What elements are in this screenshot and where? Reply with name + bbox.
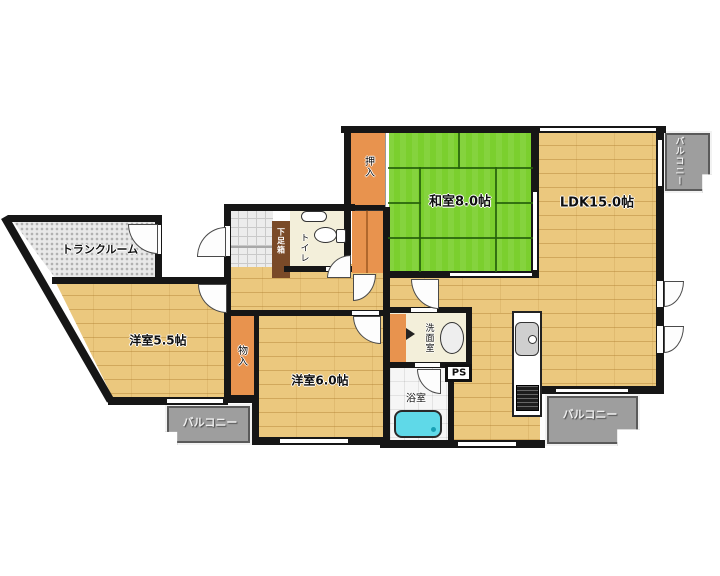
window-bottom-mid [458, 442, 516, 446]
balcony-top-right-label: バルコニー [673, 136, 686, 186]
wall-entry-top [224, 204, 355, 211]
ldk-side-door-1 [664, 281, 684, 307]
oshiire-label: 押入 [361, 156, 376, 178]
door-gap-washroom [411, 308, 437, 312]
ldk-side-door-2 [664, 326, 684, 353]
entry-step-line [229, 246, 273, 248]
washroom-label: 洗面室 [423, 323, 436, 353]
wall-washroom-right [466, 307, 472, 369]
door-gap-ldk-2 [657, 326, 663, 353]
door-gap-bath [415, 363, 440, 367]
balcony-bottom-right-label: バルコニー [563, 406, 618, 422]
ldk-label: LDK15.0帖 [560, 192, 634, 211]
window-ldk-balcony [556, 389, 628, 392]
mononyu-label: 物入 [234, 345, 249, 367]
window-balcony-tr [658, 140, 662, 186]
trunk-room-label: トランクルーム [62, 241, 138, 257]
washroom-closet-arrow [406, 328, 415, 340]
wall-wet-left [383, 271, 390, 448]
bathtub [394, 410, 442, 438]
balcony-top-right [663, 131, 712, 193]
tatami-line [388, 167, 533, 169]
room55-label: 洋室5.5帖 [129, 332, 186, 349]
hall-closet-divider [366, 210, 368, 273]
tatami-line [495, 239, 497, 272]
balcony-bottom-left-label: バルコニー [183, 414, 238, 430]
fusuma-washitsu-bottom [450, 273, 532, 276]
hall-closet [352, 210, 384, 273]
tatami-line [495, 202, 533, 204]
entry-floor [229, 209, 273, 267]
getabako-label: 下足箱 [276, 228, 287, 255]
tatami-line [388, 237, 533, 239]
door-gap-ldk-1 [657, 281, 663, 307]
wall-oshiire-bottom [351, 205, 386, 210]
ldk-floor [538, 131, 661, 389]
kitchen-stove [516, 385, 539, 411]
toilet-bowl [314, 227, 337, 243]
tatami-line [388, 202, 421, 204]
bathtub-drain [431, 427, 436, 432]
toilet-hand-basin [301, 211, 327, 222]
toilet-label: トイレ [298, 233, 311, 263]
floor-plan: 和室8.0帖 LDK15.0帖 洋室5.5帖 洋室6.0帖 トランクルーム 押入… [0, 0, 720, 576]
toilet-tank [336, 229, 346, 243]
entrance-door [197, 227, 226, 257]
wall-trunk-55-divider [52, 277, 227, 284]
washitsu-label: 和室8.0帖 [429, 191, 491, 210]
window-room60 [280, 439, 348, 443]
washroom-closet [390, 314, 406, 363]
door-gap-room60 [352, 311, 379, 315]
bath-label: 浴室 [406, 390, 426, 405]
window-ldk-top [540, 128, 656, 131]
fusuma-oshiire [385, 133, 389, 207]
ps-label: PS [452, 368, 467, 379]
wall-washitsu-left-lower [383, 207, 390, 273]
fusuma-washitsu-ldk [533, 192, 537, 270]
room60-label: 洋室6.0帖 [291, 372, 348, 389]
wall-trunk-top [8, 215, 160, 222]
kitchen-faucet [528, 335, 537, 344]
tatami-line [458, 133, 460, 169]
window-room55 [167, 399, 223, 403]
washbasin [440, 322, 464, 354]
tatami-line [419, 239, 421, 272]
